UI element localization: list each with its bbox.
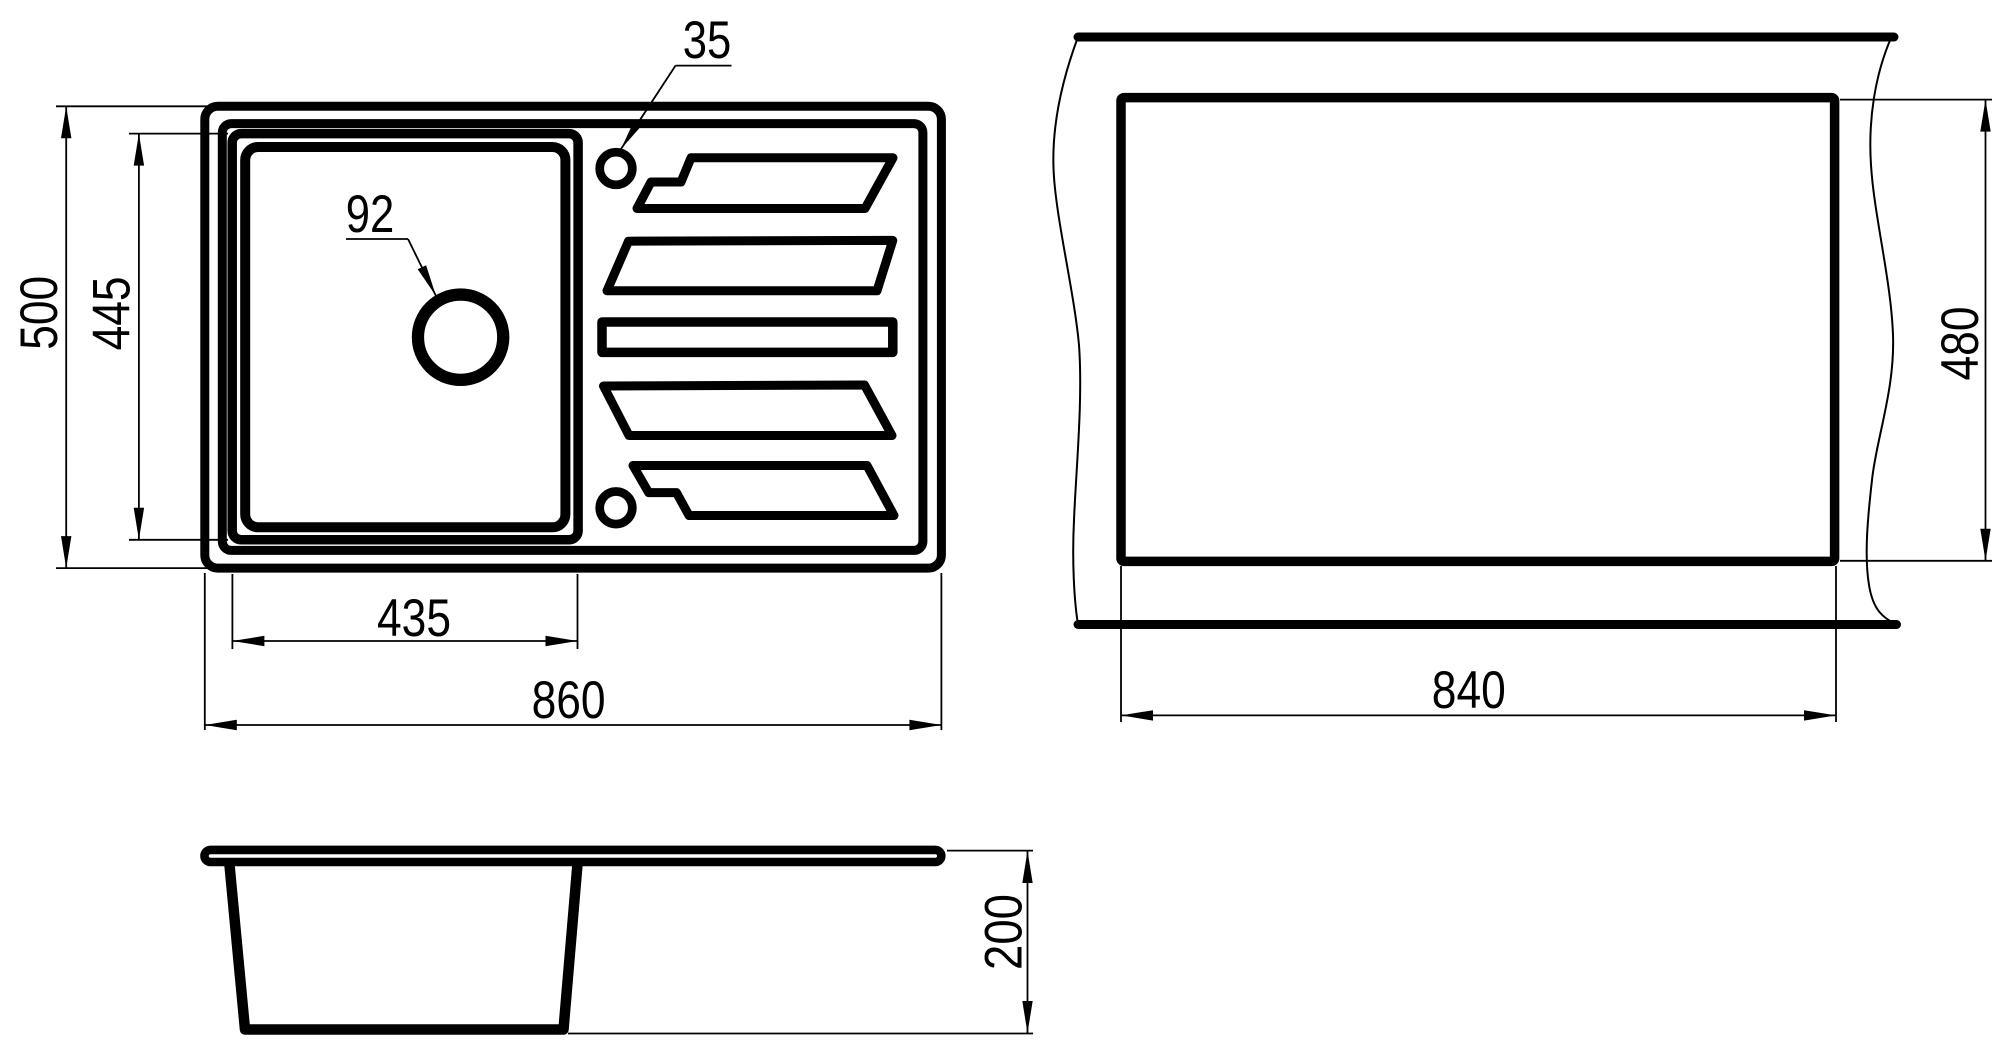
svg-text:92: 92 — [346, 185, 395, 244]
svg-text:35: 35 — [683, 11, 732, 70]
svg-text:200: 200 — [975, 894, 1034, 970]
svg-text:480: 480 — [1931, 307, 1990, 381]
svg-text:435: 435 — [377, 589, 451, 648]
svg-text:445: 445 — [83, 276, 142, 350]
svg-text:840: 840 — [1432, 661, 1506, 720]
svg-text:860: 860 — [532, 671, 606, 730]
svg-text:500: 500 — [10, 276, 69, 350]
